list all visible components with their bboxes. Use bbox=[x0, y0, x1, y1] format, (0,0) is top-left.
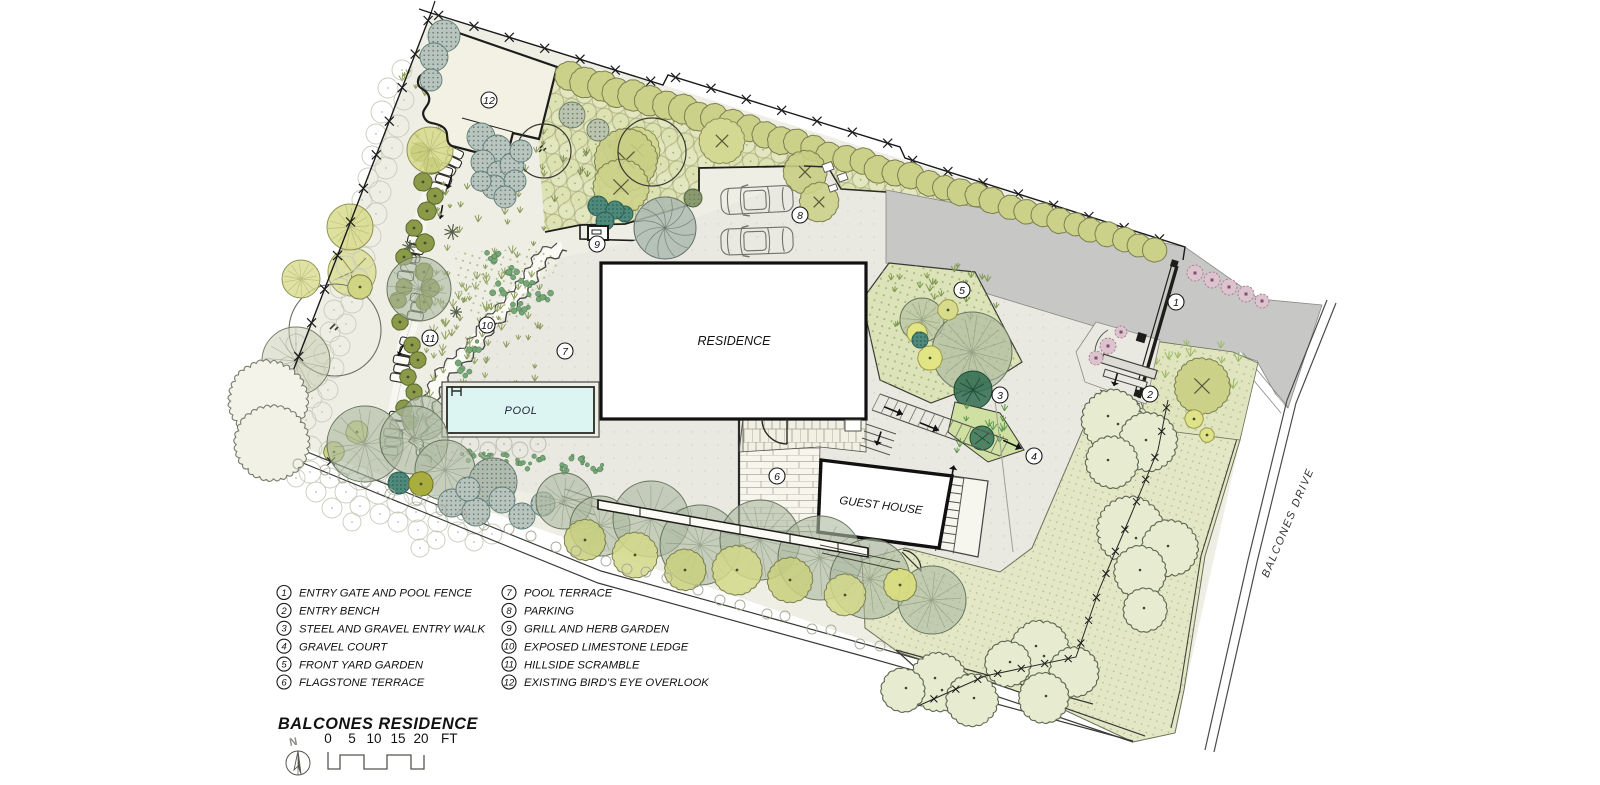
svg-text:3: 3 bbox=[997, 390, 1003, 402]
svg-text:6: 6 bbox=[281, 677, 287, 688]
svg-text:POOL: POOL bbox=[505, 405, 538, 417]
svg-text:3: 3 bbox=[281, 624, 287, 635]
svg-text:9: 9 bbox=[594, 239, 600, 251]
svg-text:5: 5 bbox=[348, 731, 356, 746]
svg-text:10: 10 bbox=[504, 642, 515, 653]
svg-text:GRILL AND HERB GARDEN: GRILL AND HERB GARDEN bbox=[524, 624, 670, 636]
svg-text:4: 4 bbox=[281, 642, 286, 653]
svg-text:FT: FT bbox=[441, 731, 458, 746]
svg-text:1: 1 bbox=[281, 588, 286, 599]
svg-text:5: 5 bbox=[959, 285, 965, 297]
svg-text:2: 2 bbox=[280, 606, 287, 617]
svg-text:4: 4 bbox=[1031, 451, 1037, 463]
svg-text:12: 12 bbox=[483, 95, 495, 107]
svg-text:ENTRY GATE AND POOL FENCE: ENTRY GATE AND POOL FENCE bbox=[299, 588, 473, 600]
svg-text:8: 8 bbox=[797, 210, 803, 222]
svg-text:7: 7 bbox=[506, 588, 512, 599]
svg-text:11: 11 bbox=[504, 660, 514, 671]
svg-text:EXPOSED LIMESTONE LEDGE: EXPOSED LIMESTONE LEDGE bbox=[524, 641, 689, 653]
svg-text:GRAVEL COURT: GRAVEL COURT bbox=[299, 641, 388, 653]
svg-text:FRONT YARD GARDEN: FRONT YARD GARDEN bbox=[299, 659, 424, 671]
svg-text:9: 9 bbox=[506, 624, 512, 635]
svg-text:STEEL AND GRAVEL ENTRY WALK: STEEL AND GRAVEL ENTRY WALK bbox=[299, 624, 486, 636]
svg-text:PARKING: PARKING bbox=[524, 606, 574, 618]
svg-text:10: 10 bbox=[481, 320, 493, 332]
svg-text:HILLSIDE SCRAMBLE: HILLSIDE SCRAMBLE bbox=[524, 659, 640, 671]
svg-text:1: 1 bbox=[1173, 297, 1179, 309]
svg-text:10: 10 bbox=[366, 731, 381, 746]
svg-text:POOL TERRACE: POOL TERRACE bbox=[524, 588, 613, 600]
svg-text:2: 2 bbox=[1146, 389, 1153, 401]
svg-text:EXISTING BIRD'S EYE OVERLOOK: EXISTING BIRD'S EYE OVERLOOK bbox=[524, 677, 709, 689]
svg-text:6: 6 bbox=[774, 471, 780, 483]
svg-text:RESIDENCE: RESIDENCE bbox=[698, 334, 772, 348]
svg-text:ENTRY BENCH: ENTRY BENCH bbox=[299, 606, 380, 618]
svg-text:8: 8 bbox=[506, 606, 512, 617]
svg-text:0: 0 bbox=[324, 731, 332, 746]
svg-text:20: 20 bbox=[413, 731, 428, 746]
svg-text:11: 11 bbox=[425, 333, 436, 345]
svg-text:15: 15 bbox=[390, 731, 405, 746]
svg-text:5: 5 bbox=[281, 660, 287, 671]
svg-text:FLAGSTONE TERRACE: FLAGSTONE TERRACE bbox=[299, 677, 425, 689]
svg-text:12: 12 bbox=[504, 677, 515, 688]
